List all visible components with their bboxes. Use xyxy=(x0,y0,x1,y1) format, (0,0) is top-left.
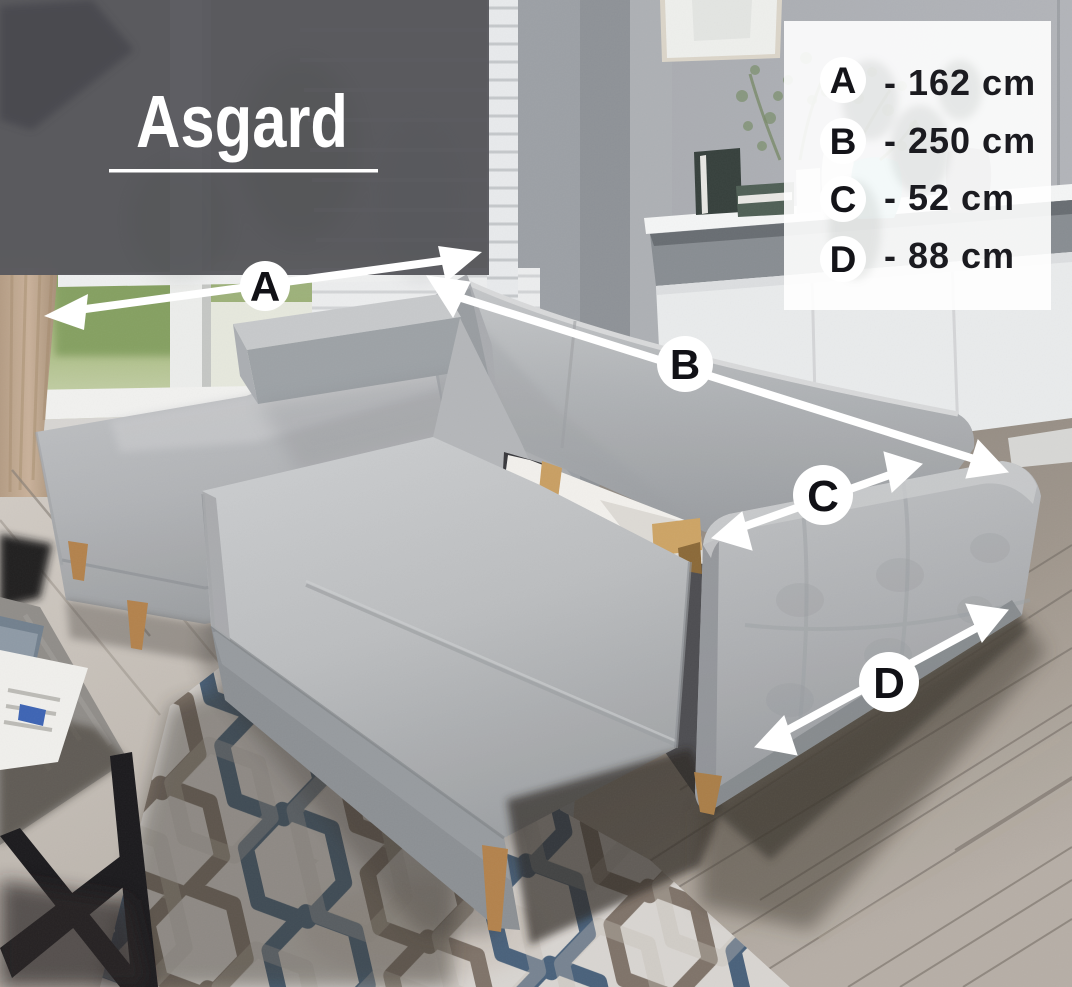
svg-text:D: D xyxy=(830,239,857,280)
svg-text:- 52 cm: - 52 cm xyxy=(884,177,1015,218)
svg-text:A: A xyxy=(830,60,857,101)
svg-text:C: C xyxy=(830,179,857,220)
svg-text:- 88 cm: - 88 cm xyxy=(884,235,1015,276)
svg-text:C: C xyxy=(807,472,839,521)
svg-text:B: B xyxy=(830,121,857,162)
svg-text:- 250 cm: - 250 cm xyxy=(884,120,1036,161)
svg-text:- 162 cm: - 162 cm xyxy=(884,62,1036,103)
svg-text:Asgard: Asgard xyxy=(136,80,348,163)
svg-text:A: A xyxy=(250,263,280,310)
svg-text:B: B xyxy=(670,341,700,388)
svg-text:D: D xyxy=(873,659,905,708)
